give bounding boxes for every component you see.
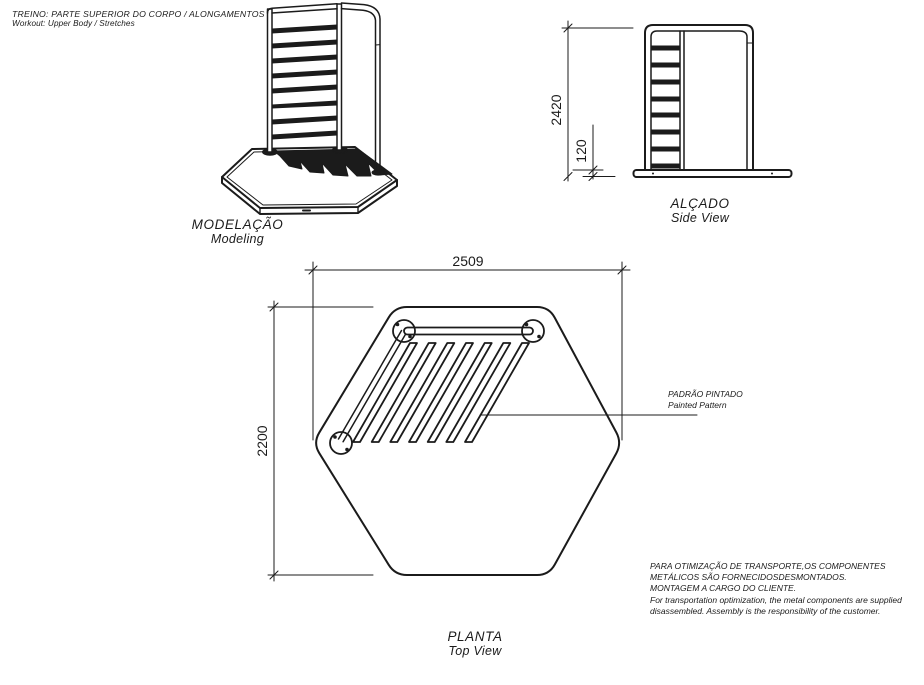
modeling-label-pt: MODELAÇÃO <box>170 217 305 232</box>
top-bar-plan <box>404 328 533 335</box>
side-label-pt: ALÇADO <box>630 196 770 211</box>
callout-text-pt: PADRÃO PINTADO <box>668 389 743 399</box>
top-view-drawing: 2509 2200 PADRÃO PINTADO Painted Pattern <box>255 250 775 590</box>
plan-view-label: PLANTA Top View <box>395 629 555 659</box>
painted-pattern-stripes <box>353 343 529 442</box>
modeling-view-label: MODELAÇÃO Modeling <box>170 217 305 247</box>
ladder-rungs-side <box>651 46 680 169</box>
note-pt-line1: PARA OTIMIZAÇÃO DE TRANSPORTE,OS COMPONE… <box>650 561 902 572</box>
technical-drawing-sheet: TREINO: PARTE SUPERIOR DO CORPO / ALONGA… <box>0 0 924 685</box>
dim-text-120: 120 <box>573 139 589 163</box>
dim-text-2509: 2509 <box>452 253 483 269</box>
note-en-line1: For transportation optimization, the met… <box>650 595 902 606</box>
base-plate-side <box>634 170 792 177</box>
note-pt-line2: METÁLICOS SÃO FORNECIDOSDESMONTADOS. <box>650 572 902 583</box>
dim-text-2200: 2200 <box>255 425 270 456</box>
side-view-label: ALÇADO Side View <box>630 196 770 226</box>
plan-label-pt: PLANTA <box>395 629 555 644</box>
plan-label-en: Top View <box>395 644 555 659</box>
diagonal-bar-plan <box>339 331 407 442</box>
note-en-line2: disassembled. Assembly is the responsibi… <box>650 606 902 617</box>
callout-text-en: Painted Pattern <box>668 400 727 410</box>
dim-text-2420: 2420 <box>548 94 564 125</box>
modeling-3d-drawing <box>210 0 410 215</box>
ladder-rungs-3d <box>272 25 337 140</box>
note-pt-line3: MONTAGEM A CARGO DO CLIENTE. <box>650 583 902 594</box>
ladder-rail-line <box>680 31 684 170</box>
side-label-en: Side View <box>630 211 770 226</box>
modeling-label-en: Modeling <box>170 232 305 247</box>
transport-notes: PARA OTIMIZAÇÃO DE TRANSPORTE,OS COMPONE… <box>650 561 902 617</box>
